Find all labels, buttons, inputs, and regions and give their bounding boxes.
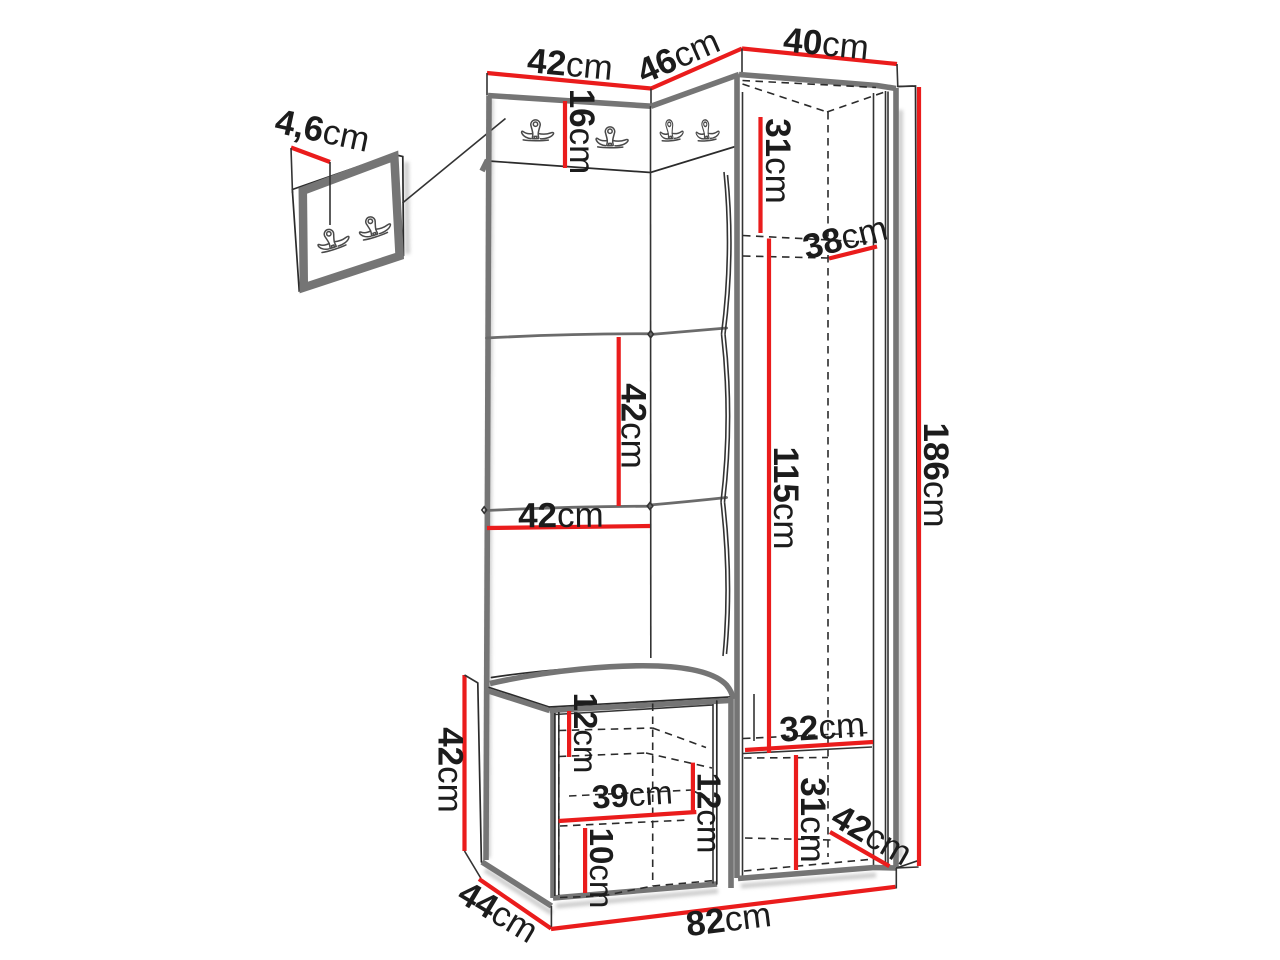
svg-text:31cm: 31cm bbox=[793, 777, 832, 863]
svg-text:42cm: 42cm bbox=[431, 727, 470, 813]
svg-text:115cm: 115cm bbox=[766, 446, 805, 549]
svg-text:12cm: 12cm bbox=[691, 773, 728, 854]
svg-text:10cm: 10cm bbox=[583, 828, 620, 909]
svg-text:12cm: 12cm bbox=[567, 693, 604, 774]
svg-text:186cm: 186cm bbox=[916, 422, 955, 527]
svg-text:16cm: 16cm bbox=[562, 89, 601, 175]
svg-text:32cm: 32cm bbox=[778, 705, 866, 749]
svg-text:31cm: 31cm bbox=[758, 118, 797, 204]
svg-text:39cm: 39cm bbox=[591, 773, 674, 815]
svg-text:42cm: 42cm bbox=[614, 383, 653, 469]
svg-text:42cm: 42cm bbox=[526, 41, 615, 88]
svg-text:42cm: 42cm bbox=[518, 496, 604, 536]
